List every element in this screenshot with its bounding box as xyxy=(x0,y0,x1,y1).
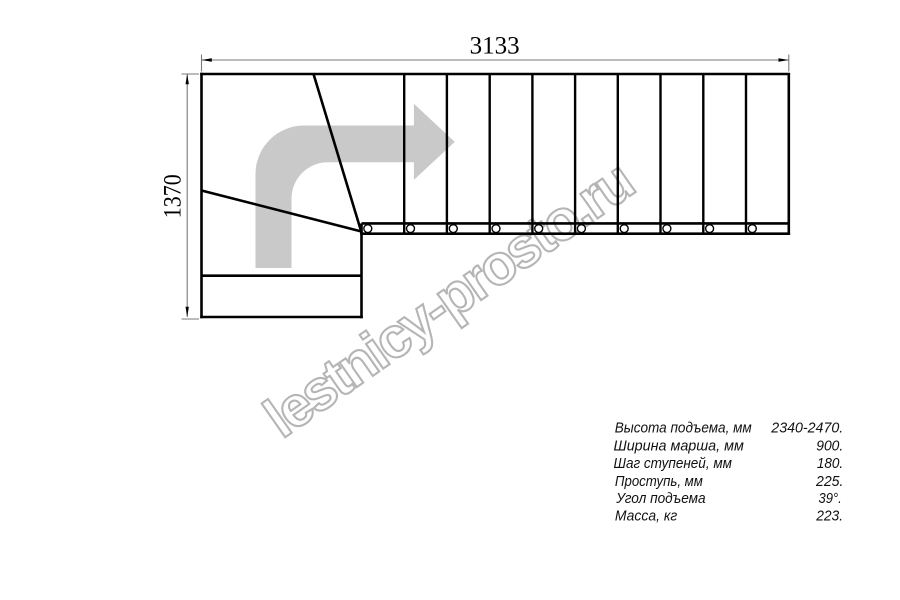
svg-text:Высота подъема, мм: Высота подъема, мм xyxy=(615,420,753,437)
svg-text:180.: 180. xyxy=(817,455,843,472)
svg-text:Проступь, мм: Проступь, мм xyxy=(615,473,703,490)
svg-text:Масса, кг: Масса, кг xyxy=(615,507,678,524)
svg-text:Угол подъема: Угол подъема xyxy=(615,490,705,507)
svg-text:3133: 3133 xyxy=(470,33,520,60)
svg-text:Шаг ступеней, мм: Шаг ступеней, мм xyxy=(614,455,733,472)
svg-text:223.: 223. xyxy=(815,507,843,524)
svg-text:900.: 900. xyxy=(816,437,843,454)
svg-text:Ширина марша, мм: Ширина марша, мм xyxy=(614,437,745,454)
svg-text:225.: 225. xyxy=(815,473,843,490)
svg-text:1370: 1370 xyxy=(160,174,187,218)
svg-text:2340-2470.: 2340-2470. xyxy=(770,420,843,437)
svg-text:39°.: 39°. xyxy=(819,490,842,507)
